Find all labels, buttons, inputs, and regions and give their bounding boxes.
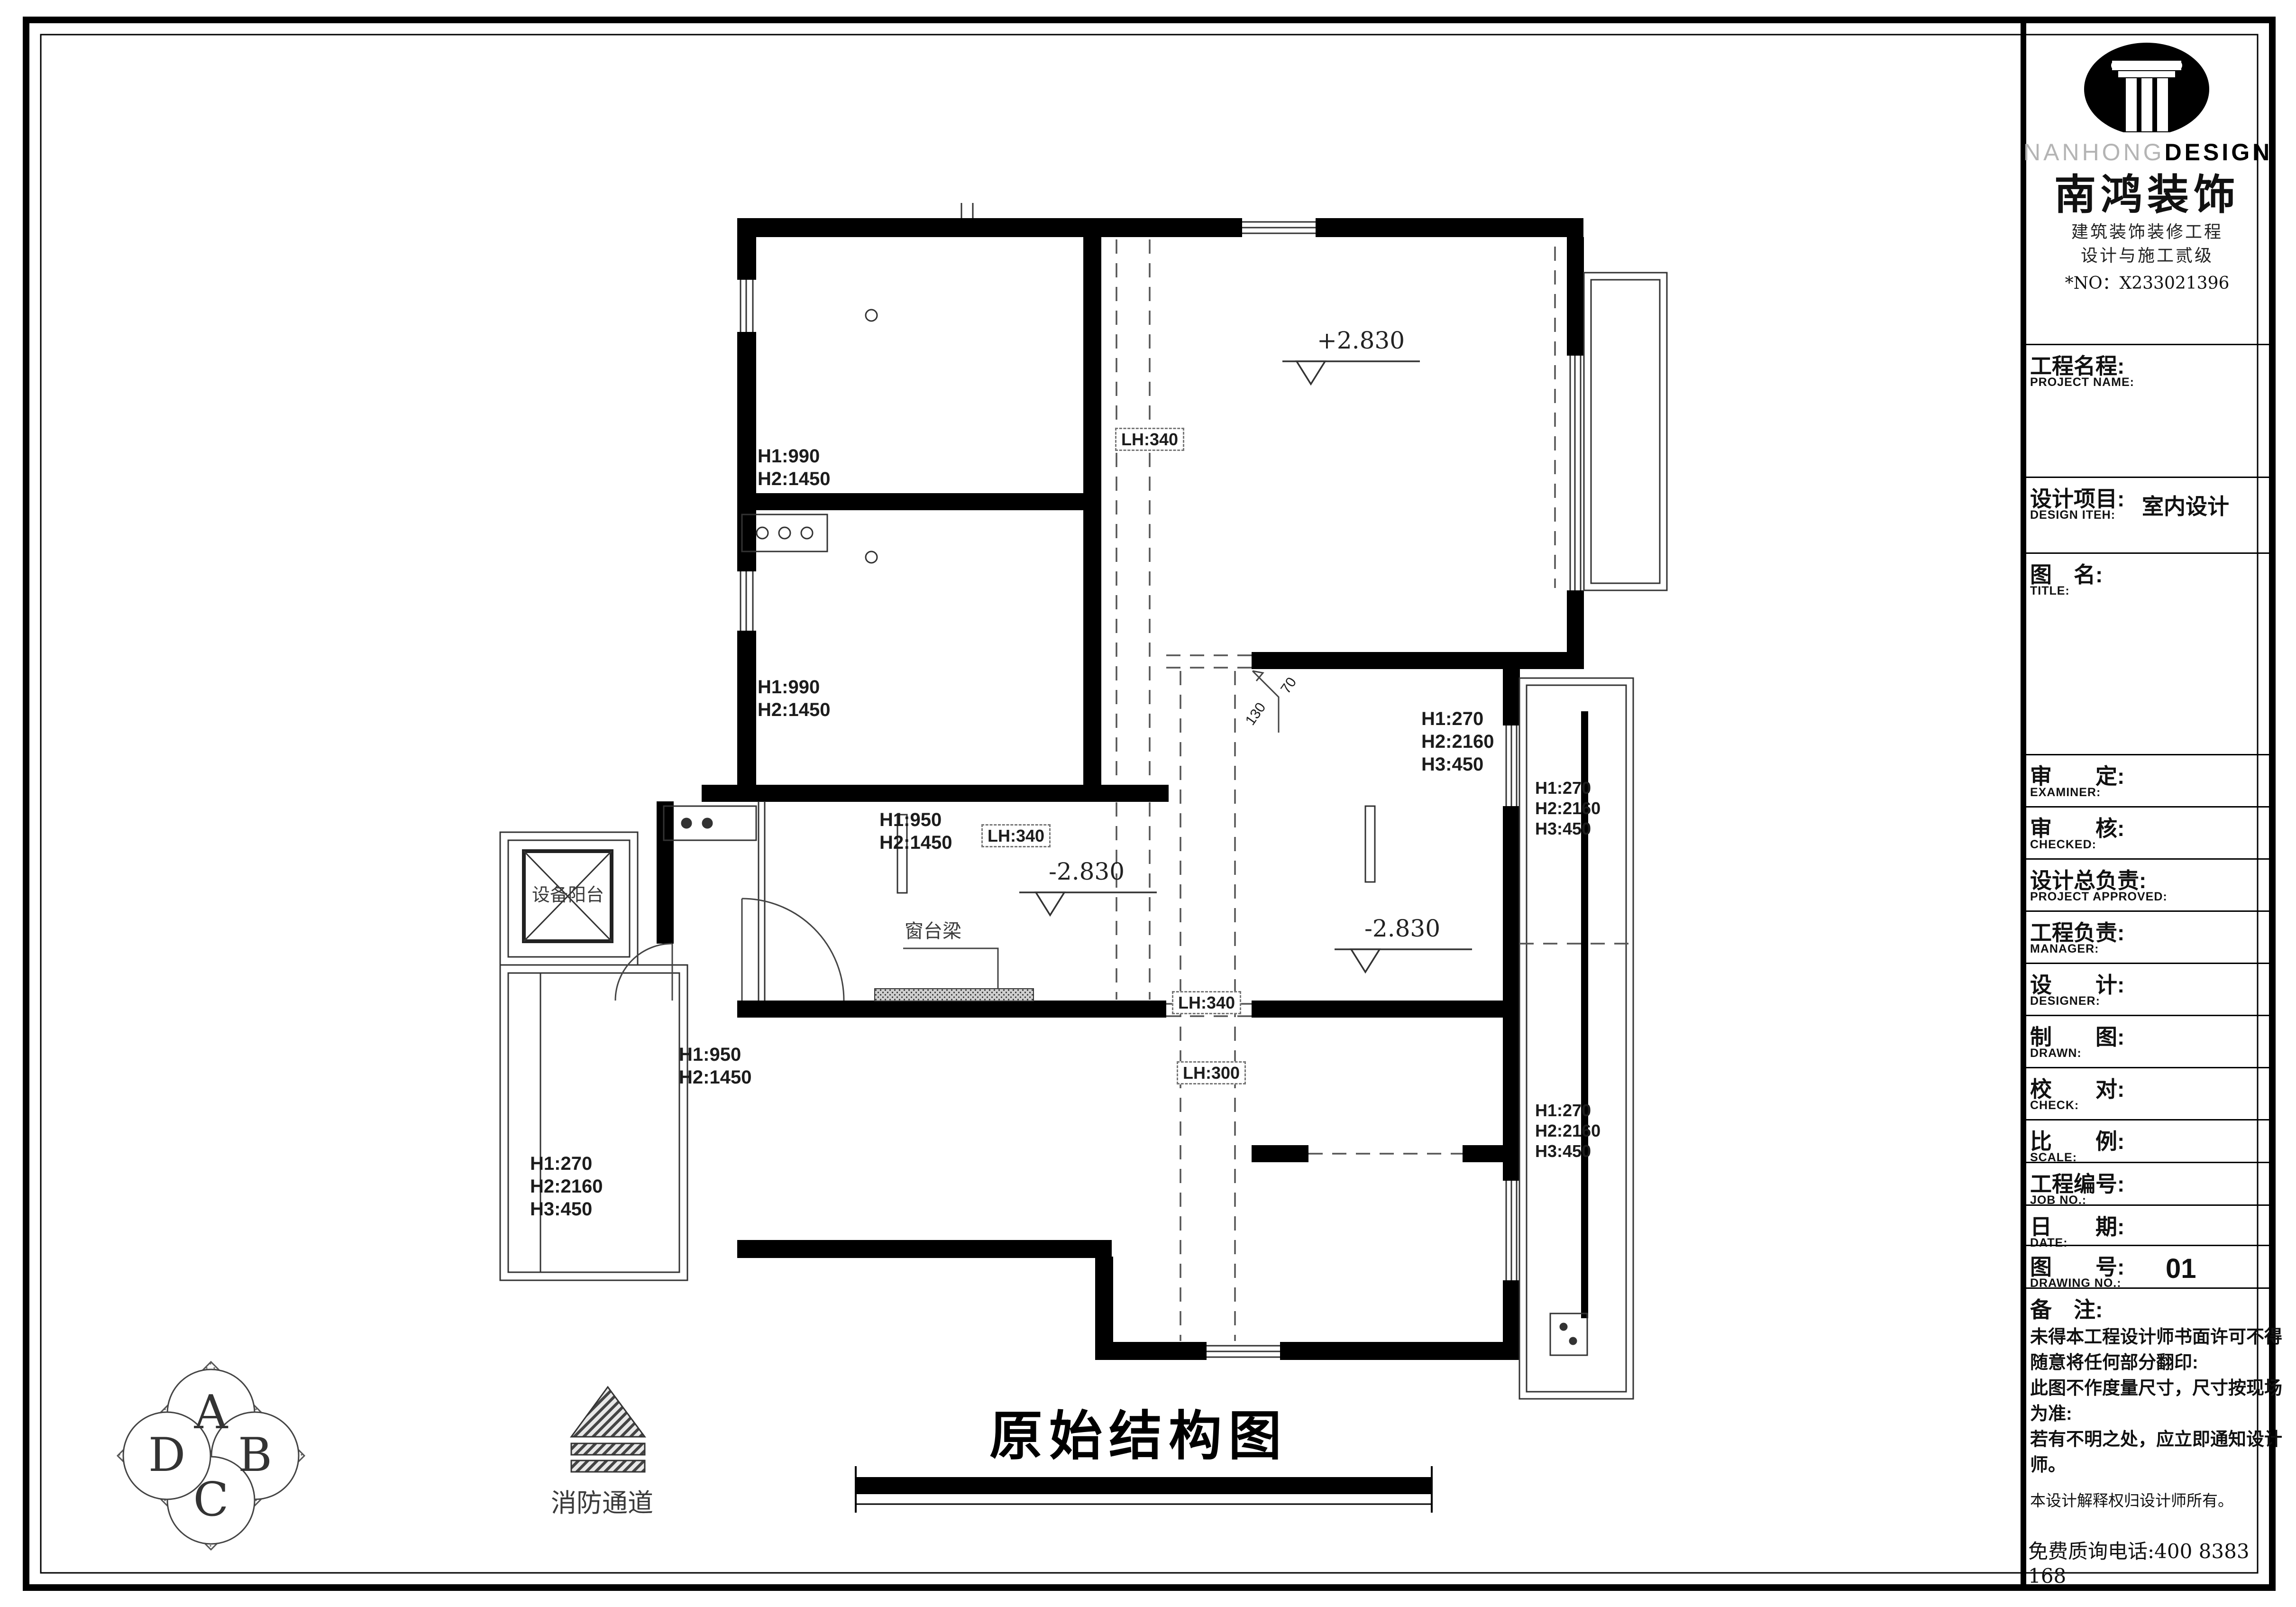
room-label-h950-mid: H1:950 H2:1450 xyxy=(879,808,952,854)
compass-letter-c: C xyxy=(193,1472,229,1528)
room-label-h950-kitchen: H1:950 H2:1450 xyxy=(679,1043,751,1089)
compass-letter-d: D xyxy=(148,1428,186,1484)
fire-passage-label: 消防通道 xyxy=(551,1488,653,1519)
beam-label: 窗台梁 xyxy=(905,920,961,943)
titleblock-row-designer: 设 计:DESIGNER: xyxy=(2023,963,2271,1015)
titleblock-row-checked: 审 核:CHECKED: xyxy=(2023,806,2271,858)
plan-title: 原始结构图 xyxy=(959,1405,1319,1468)
fire-passage-arrow xyxy=(571,1387,645,1472)
hole-symbol-1 xyxy=(866,310,877,321)
opening-label-lh300: LH:300 xyxy=(1177,1061,1246,1084)
equipment-balcony-label: 设备阳台 xyxy=(532,885,604,907)
titleblock-row-project-approved: 设计总负责:PROJECT APPROVED: xyxy=(2023,858,2271,910)
beam-strip xyxy=(875,948,1034,1001)
appliance-box xyxy=(1550,1313,1587,1355)
room-label-h270-balcony-upper: H1:270 H2:2160 H3:450 xyxy=(1535,778,1601,839)
titleblock-row-job-no: 工程编号:JOB NO.: xyxy=(2023,1162,2271,1204)
title-underline xyxy=(856,1466,1432,1513)
titleblock-row-project-name: 工程名程:PROJECT NAME: xyxy=(2023,344,2271,477)
room-label-h270-left: H1:270 H2:2160 H3:450 xyxy=(530,1152,603,1221)
slider-symbol-2 xyxy=(1365,806,1375,882)
balcony-top-right xyxy=(1584,273,1667,590)
window-symbols xyxy=(741,203,1581,1357)
field-label-en: PROJECT APPROVED: xyxy=(2030,890,2168,904)
titleblock-row-date: 日 期:DATE: xyxy=(2023,1204,2271,1245)
field-label-en: CHECK: xyxy=(2030,1099,2079,1112)
field-label-en: CHECKED: xyxy=(2030,838,2096,852)
titleblock-row-title: 图 名:TITLE: xyxy=(2023,552,2271,754)
field-label-en: DRAWN: xyxy=(2030,1047,2082,1060)
level-plus-2830: +2.830 xyxy=(1317,326,1405,355)
structural-walls xyxy=(657,218,1588,1360)
room-label-h990-2: H1:990 H2:1450 xyxy=(758,676,830,721)
drawing-sheet: H1:990 H2:1450H1:990 H2:1450H1:950 H2:14… xyxy=(0,0,2296,1607)
compass-letter-b: B xyxy=(238,1428,272,1484)
field-label-en: DESIGN ITEH: xyxy=(2030,508,2115,522)
compass-letter-a: A xyxy=(194,1385,228,1441)
field-label-en: EXAMINER: xyxy=(2030,786,2101,799)
field-label-en: TITLE: xyxy=(2030,584,2070,598)
titleblock-row-examiner: 审 定:EXAMINER: xyxy=(2023,754,2271,806)
titleblock-row-drawing-no: 图 号:DRAWING NO.:01 xyxy=(2023,1245,2271,1287)
hole-symbol-2 xyxy=(866,551,877,563)
field-value: 01 xyxy=(2166,1253,2196,1285)
titleblock-row-design-iteh: 设计项目:DESIGN ITEH:室内设计 xyxy=(2023,477,2271,552)
door-arcs xyxy=(615,899,844,1001)
floor-plan-canvas xyxy=(0,0,2296,1607)
level-minus-2830-b: -2.830 xyxy=(1364,914,1440,943)
titleblock-row-check: 校 对:CHECK: xyxy=(2023,1067,2271,1119)
room-label-h270-balcony-lower: H1:270 H2:2160 H3:450 xyxy=(1535,1100,1601,1162)
room-label-h990-1: H1:990 H2:1450 xyxy=(758,445,830,490)
field-label-en: PROJECT NAME: xyxy=(2030,376,2134,389)
remark-row: 备 注: 未得本工程设计师书面许可不得 随意将任何部分翻印: 此图不作度量尺寸，… xyxy=(2023,1287,2271,1587)
field-value: 室内设计 xyxy=(2142,489,2229,521)
titleblock-row-drawn: 制 图:DRAWN: xyxy=(2023,1015,2271,1067)
remark-lines: 未得本工程设计师书面许可不得 随意将任何部分翻印: 此图不作度量尺寸，尺寸按现场… xyxy=(2030,1325,2282,1478)
titleblock-row-manager: 工程负责:MANAGER: xyxy=(2023,910,2271,963)
room-label-h270-midright: H1:270 H2:2160 H3:450 xyxy=(1421,707,1494,776)
opening-label-lh340-mid: LH:340 xyxy=(981,824,1051,847)
remark-label: 备 注: xyxy=(2030,1293,2103,1324)
title-block: 工程名程:PROJECT NAME:设计项目:DESIGN ITEH:室内设计图… xyxy=(2023,19,2271,1587)
field-label-en: MANAGER: xyxy=(2030,942,2099,956)
hotline: 免费质询电话:400 8383 168 xyxy=(2028,1535,2271,1588)
field-label-en: DESIGNER: xyxy=(2030,994,2100,1008)
level-minus-2830-a: -2.830 xyxy=(1049,857,1125,886)
remark-note2: 本设计解释权归设计师所有。 xyxy=(2030,1488,2233,1511)
opening-label-lh340-top: LH:340 xyxy=(1115,428,1184,451)
fire-corridor-frame xyxy=(500,965,687,1280)
opening-label-lh340-wall: LH:340 xyxy=(1172,991,1241,1014)
titleblock-row-scale: 比 例:SCALE: xyxy=(2023,1119,2271,1162)
